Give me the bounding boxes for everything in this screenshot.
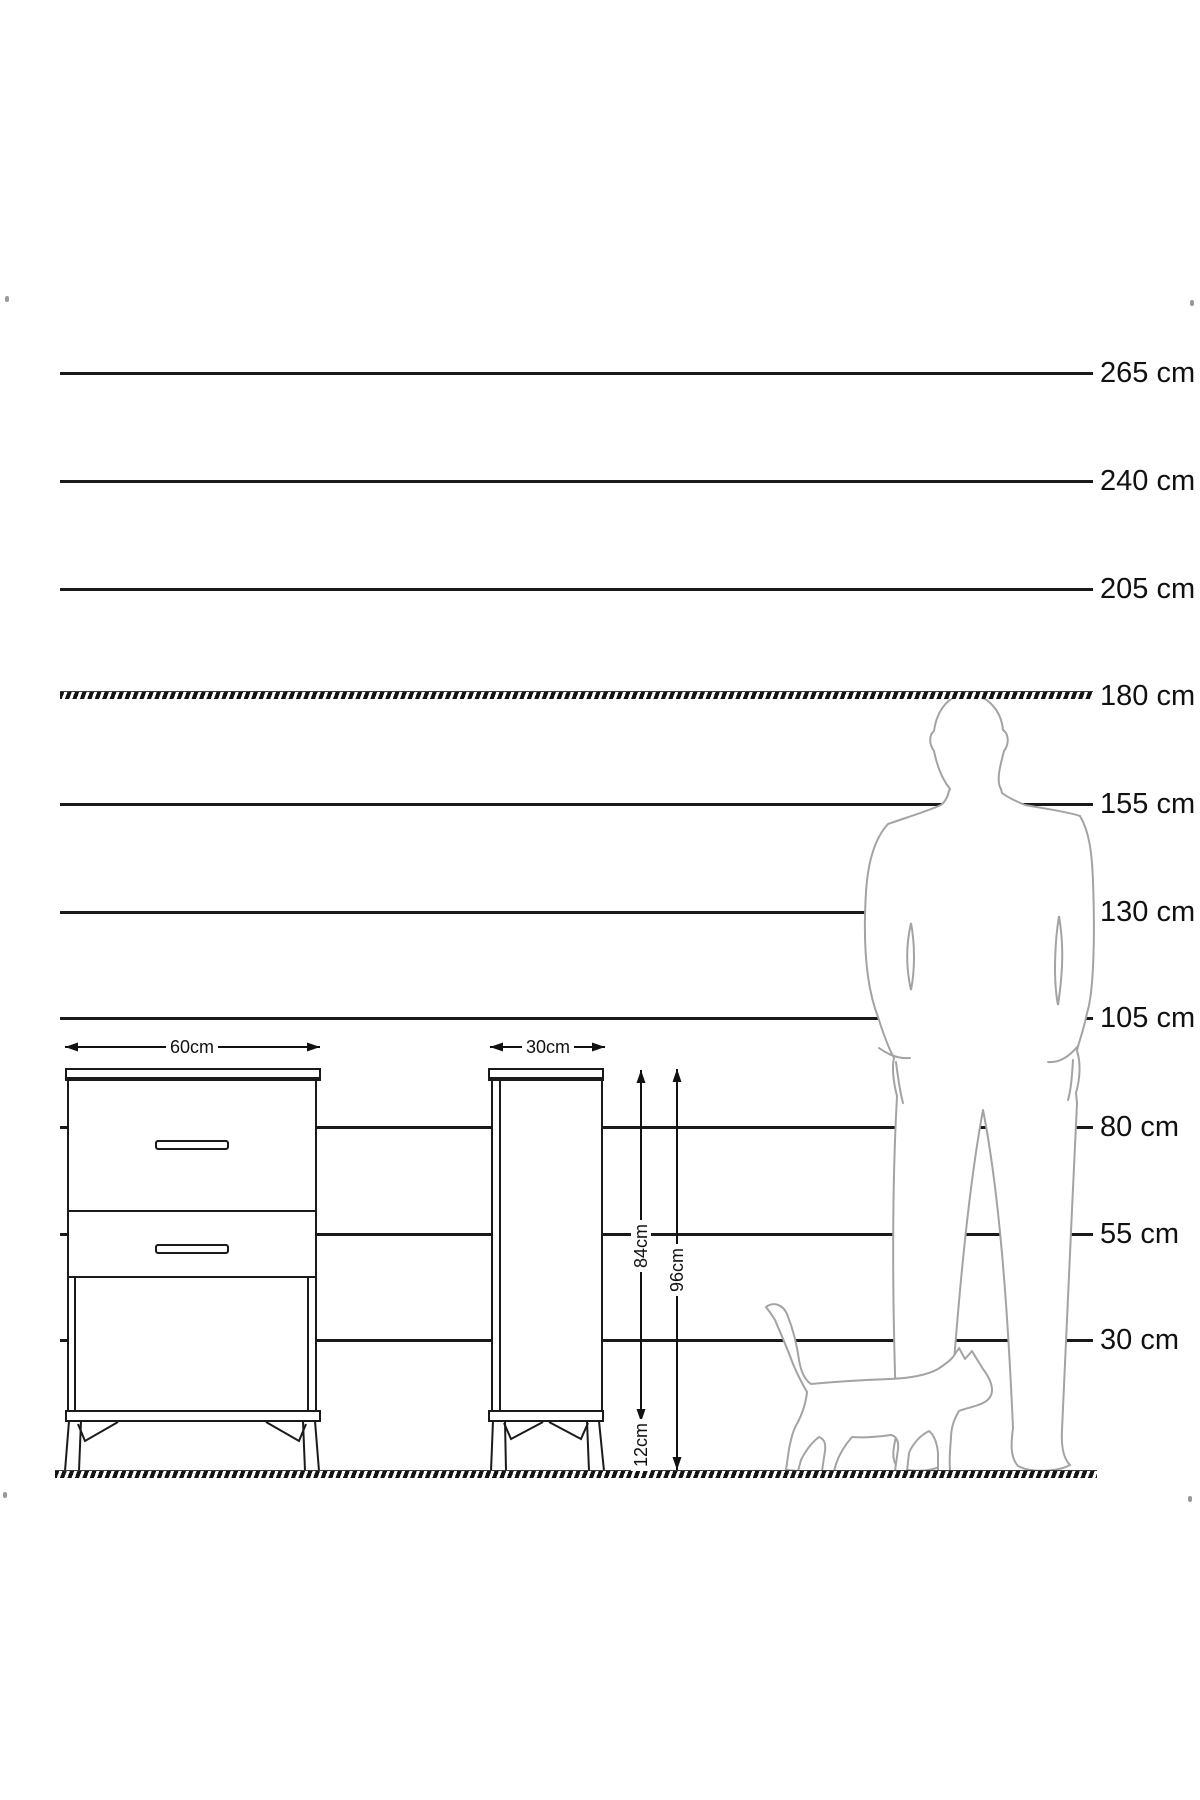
scale-label-130: 130 cm [1100,895,1195,929]
arrowhead-left [490,1043,503,1052]
arrowhead-top [673,1069,682,1082]
scale-label-55: 55 cm [1100,1217,1179,1251]
scan-speck [1188,1496,1192,1502]
scale-label-80: 80 cm [1100,1110,1179,1144]
dim-label-side-depth: 30cm [522,1037,574,1057]
arrowhead-left [65,1043,78,1052]
arrowhead-top [637,1070,646,1083]
dim-label-front-width: 60cm [166,1037,218,1057]
dim-label-leg-height: 12cm [631,1419,651,1471]
dim-label-total-height: 96cm [667,1244,687,1296]
scale-label-30: 30 cm [1100,1323,1179,1357]
diagram-canvas: 265 cm 240 cm 205 cm 180 cm 155 cm 130 c… [0,0,1200,1800]
arrowhead-right [307,1043,320,1052]
scale-label-205: 205 cm [1100,572,1195,606]
scan-speck [1190,300,1194,306]
arrowhead-right [592,1043,605,1052]
dim-label-carcass-height: 84cm [631,1220,651,1272]
scale-label-155: 155 cm [1100,787,1195,821]
dimension-lines-layer [0,0,1200,1800]
scale-label-265: 265 cm [1100,356,1195,390]
scale-label-105: 105 cm [1100,1001,1195,1035]
scale-label-180: 180 cm [1100,679,1195,713]
arrowhead-bottom [673,1457,682,1470]
scan-speck [5,296,9,302]
scale-label-240: 240 cm [1100,464,1195,498]
scan-speck [3,1492,7,1498]
